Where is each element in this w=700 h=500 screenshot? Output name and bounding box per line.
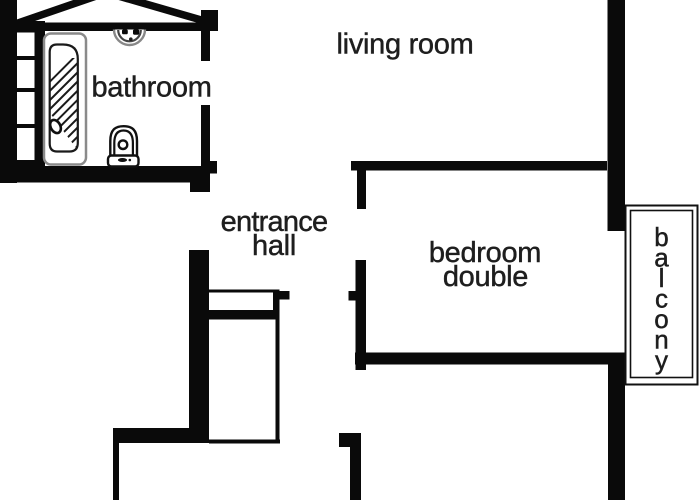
svg-text:living room: living room xyxy=(337,29,474,61)
svg-text:double: double xyxy=(443,261,528,293)
svg-text:bathroom: bathroom xyxy=(91,72,211,104)
svg-text:hall: hall xyxy=(252,230,296,262)
svg-text:y: y xyxy=(655,345,668,375)
